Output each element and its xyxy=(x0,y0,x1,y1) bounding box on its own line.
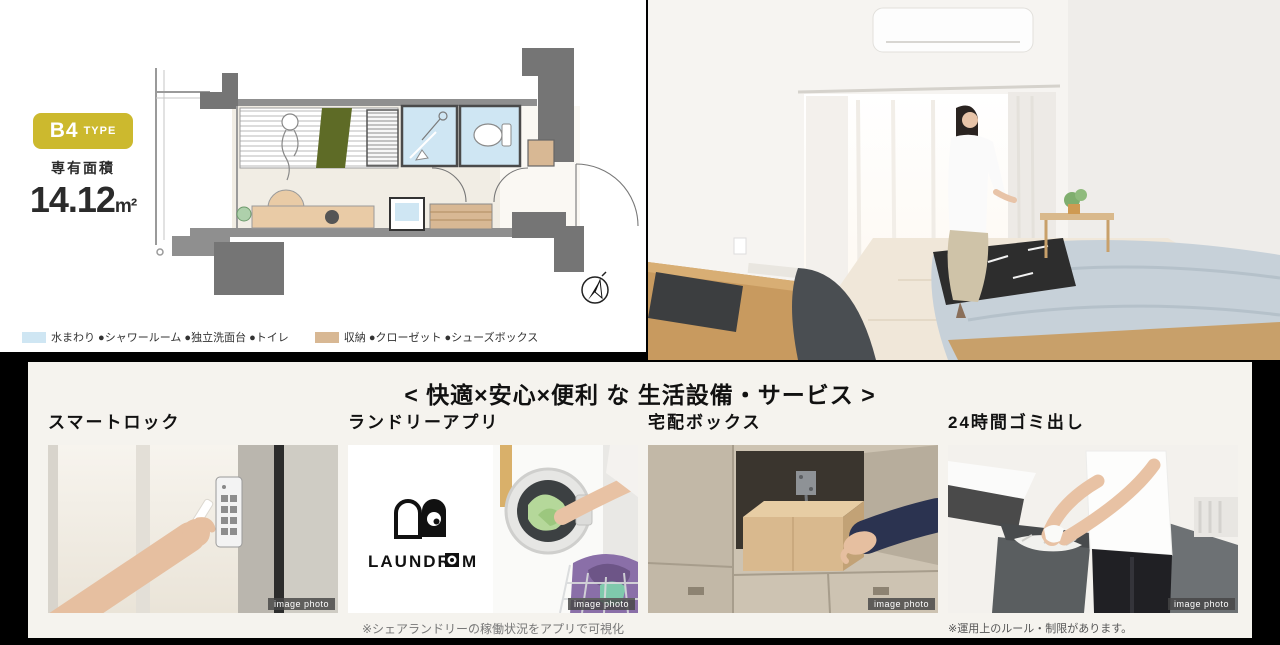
legend-wet-area: 水まわり ●シャワールーム ●独立洗面台 ●トイレ xyxy=(22,329,289,345)
smart-lock-illustration xyxy=(48,445,338,613)
laundry-illustration: LAUNDR M xyxy=(348,445,638,613)
unit-type-name: B4 xyxy=(50,119,79,143)
service-delivery-box: 宅配ボックス xyxy=(648,408,938,613)
service-laundry-app: ランドリーアプリ LAUNDR xyxy=(348,408,638,613)
floorplan-legend: 水まわり ●シャワールーム ●独立洗面台 ●トイレ 収納 ●クローゼット ●シュ… xyxy=(22,329,538,345)
air-conditioner xyxy=(873,8,1033,52)
plan-closet xyxy=(367,110,398,166)
plan-shoebox xyxy=(528,140,554,166)
unit-area-label: 専有面積 xyxy=(14,158,152,178)
compass-icon xyxy=(582,272,608,303)
plan-toilet-room xyxy=(460,106,520,166)
delivery-box-illustration xyxy=(648,445,938,613)
legend-wet-area-label: 水まわり ●シャワールーム ●独立洗面台 ●トイレ xyxy=(51,329,289,345)
legend-storage-swatch xyxy=(315,332,339,343)
garbage-caption: ※運用上のルール・制限があります。 xyxy=(948,620,1238,636)
logo-text-left: LAUNDR xyxy=(368,552,452,571)
plan-shower-room xyxy=(402,106,457,166)
radiator xyxy=(1194,497,1238,537)
image-photo-watermark: image photo xyxy=(1168,598,1235,610)
image-photo-watermark: image photo xyxy=(268,598,335,610)
services-panel: < 快適×安心×便利 な 生活設備・サービス > スマートロック xyxy=(28,362,1252,638)
service-title: スマートロック xyxy=(48,408,338,433)
keypad-lock xyxy=(216,477,242,547)
room-photo xyxy=(648,0,1280,360)
service-title: 24時間ゴミ出し xyxy=(948,408,1238,433)
smart-lock-photo: image photo xyxy=(48,445,338,613)
services-heading: < 快適×安心×便利 な 生活設備・サービス > xyxy=(28,376,1252,410)
laundry-caption: ※シェアランドリーの稼働状況をアプリで可視化 xyxy=(348,620,638,637)
delivery-box-photo: image photo xyxy=(648,445,938,613)
wall-switch xyxy=(734,238,746,254)
logo-text-right: M xyxy=(462,552,476,571)
unit-type-badge: B4 TYPE xyxy=(33,113,133,149)
page: B4 TYPE 専有面積 14.12m² xyxy=(0,0,1280,645)
locker-handle xyxy=(688,587,704,595)
laundry-photo: LAUNDR M xyxy=(348,445,638,613)
service-title: ランドリーアプリ xyxy=(348,408,638,433)
room-photo-illustration xyxy=(648,0,1280,360)
floorplan-panel: B4 TYPE 専有面積 14.12m² xyxy=(0,0,646,352)
locker-handle xyxy=(873,587,889,595)
legend-storage-label: 収納 ●クローゼット ●シューズボックス xyxy=(344,329,539,345)
legend-storage: 収納 ●クローゼット ●シューズボックス xyxy=(315,329,539,345)
service-smart-lock: スマートロック xyxy=(48,408,338,613)
service-title: 宅配ボックス xyxy=(648,408,938,433)
legend-wet-area-swatch xyxy=(22,332,46,343)
image-photo-watermark: image photo xyxy=(568,598,635,610)
garbage-illustration xyxy=(948,445,1238,613)
unit-area-value: 14.12m² xyxy=(14,178,152,221)
service-garbage: 24時間ゴミ出し xyxy=(948,408,1238,613)
image-photo-watermark: image photo xyxy=(868,598,935,610)
garbage-photo: image photo xyxy=(948,445,1238,613)
unit-type-suffix: TYPE xyxy=(84,125,117,137)
floorplan-drawing xyxy=(140,40,640,310)
unit-area: 専有面積 14.12m² xyxy=(14,158,152,221)
